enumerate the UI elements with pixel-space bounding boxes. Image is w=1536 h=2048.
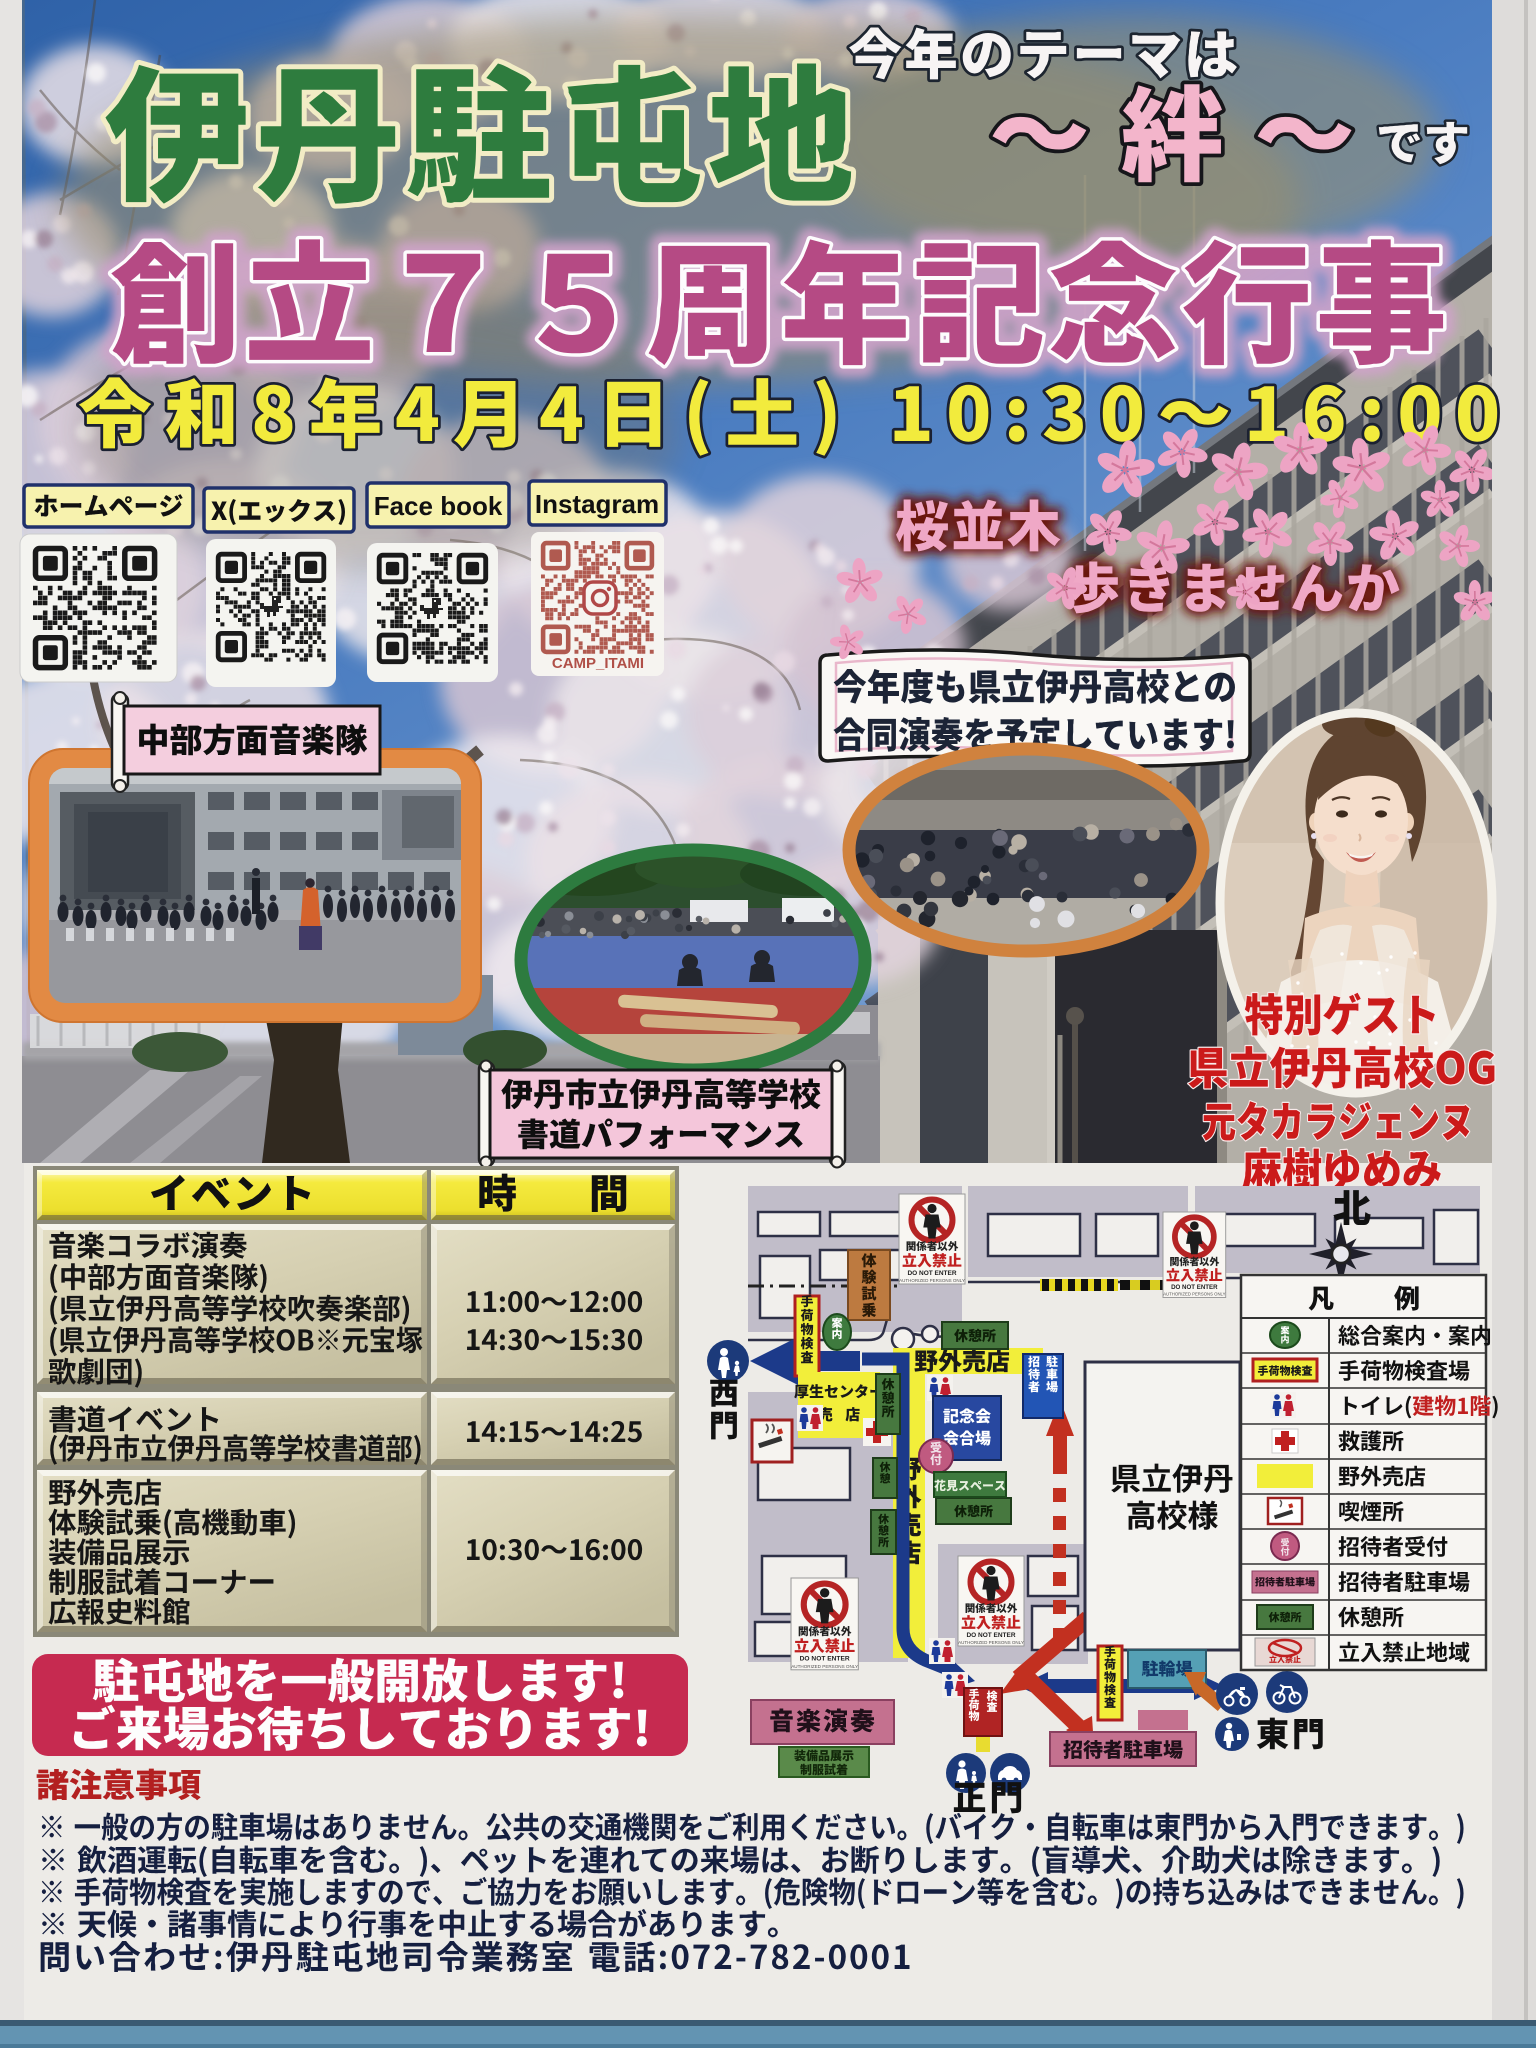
svg-text:AUTHORIZED PERSONS ONLY: AUTHORIZED PERSONS ONLY: [791, 1664, 858, 1669]
svg-text:DO NOT ENTER: DO NOT ENTER: [1171, 1284, 1218, 1291]
svg-text:CAMP_ITAMI: CAMP_ITAMI: [552, 655, 644, 672]
svg-text:Instagram: Instagram: [535, 489, 659, 519]
svg-text:AUTHORIZED PERSONS ONLY: AUTHORIZED PERSONS ONLY: [958, 1640, 1024, 1645]
svg-text:DO NOT ENTER: DO NOT ENTER: [966, 1632, 1015, 1639]
svg-text:AUTHORIZED PERSONS ONLY: AUTHORIZED PERSONS ONLY: [899, 1278, 965, 1283]
svg-text:DO NOT ENTER: DO NOT ENTER: [907, 1270, 956, 1277]
svg-text:Face book: Face book: [374, 491, 503, 521]
svg-text:DO NOT ENTER: DO NOT ENTER: [800, 1656, 850, 1663]
svg-text:AUTHORIZED PERSONS ONLY: AUTHORIZED PERSONS ONLY: [1163, 1292, 1225, 1297]
